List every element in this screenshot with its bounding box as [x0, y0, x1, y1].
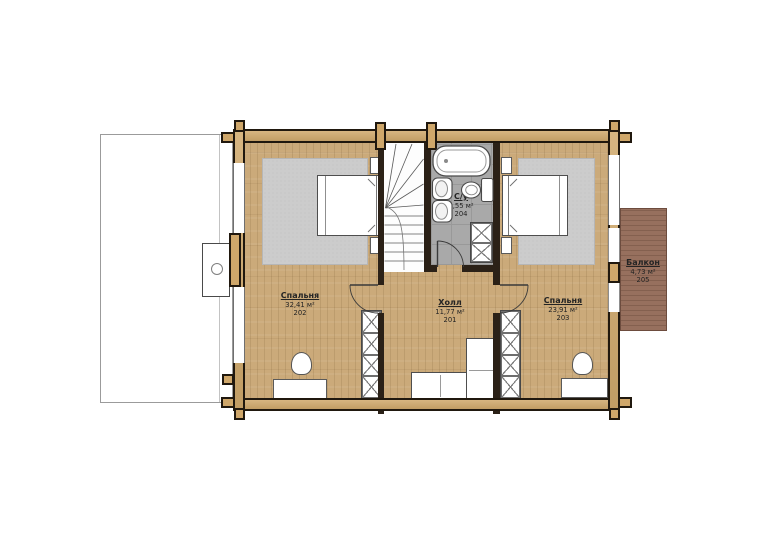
wardrobe-right [500, 310, 521, 399]
room-area: 6,55 м² [429, 202, 493, 210]
window [608, 155, 620, 225]
floorplan-canvas: Спальня 32,41 м² 202 Холл 11,77 м² 201 С… [0, 0, 768, 543]
room-name: Балкон [617, 258, 669, 268]
log-end [609, 408, 620, 420]
room-label-bedroom-right: Спальня 23,91 м² 203 [523, 296, 603, 323]
sofa-seat [411, 372, 468, 399]
chimney-flue-circle [211, 263, 223, 275]
exterior-wall-bottom [233, 398, 620, 411]
room-number: 203 [523, 314, 603, 322]
log-end [618, 397, 632, 408]
log-end [221, 397, 235, 408]
room-name: С/у [429, 192, 493, 202]
room-name: Холл [410, 298, 490, 308]
room-area: 4,73 м² [617, 268, 669, 276]
window [233, 163, 245, 233]
room-label-balcony: Балкон 4,73 м² 205 [617, 258, 669, 285]
log-end [234, 408, 245, 420]
interior-wall-bath-right-upper [493, 143, 500, 285]
room-area: 32,41 м² [255, 301, 345, 309]
cabinet-cell [471, 243, 492, 263]
nightstand [501, 237, 512, 254]
room-label-hall: Холл 11,77 м² 201 [410, 298, 490, 325]
interior-wall-bath-bottom-right [462, 265, 500, 272]
bed-right [502, 175, 568, 236]
chimney-flue-wall [229, 233, 241, 287]
sofa-cushion-line [440, 375, 441, 397]
room-number: 202 [255, 309, 345, 317]
bed-headboard [503, 176, 509, 235]
balcony-door-opening [608, 283, 620, 312]
wardrobe-cell [501, 376, 520, 398]
wardrobe-cell [501, 311, 520, 333]
room-name: Спальня [255, 291, 345, 301]
cabinet-cell [471, 223, 492, 243]
log-end [609, 120, 620, 132]
bed-blanket-line [559, 176, 560, 235]
room-name: Спальня [523, 296, 603, 306]
log-end [221, 132, 235, 143]
room-number: 205 [617, 276, 669, 284]
interior-wall-stair-left-upper [378, 143, 384, 285]
log-junction [426, 122, 437, 150]
log-end [618, 132, 632, 143]
room-label-bathroom: С/у 6,55 м² 204 [429, 192, 493, 219]
room-area: 11,77 м² [410, 308, 490, 316]
dresser [561, 378, 608, 398]
log-end [222, 374, 234, 385]
chimney [202, 243, 230, 297]
room-number: 204 [429, 210, 493, 218]
window [233, 287, 245, 363]
staircase [384, 143, 424, 272]
wardrobe-cell [501, 355, 520, 377]
room-label-bedroom-left: Спальня 32,41 м² 202 [255, 291, 345, 318]
armchair [572, 352, 593, 375]
armchair [291, 352, 312, 375]
nightstand [501, 157, 512, 174]
bed-blanket-line [325, 176, 326, 235]
log-junction [375, 122, 386, 150]
wardrobe-cell [501, 333, 520, 355]
bathroom-cabinet [470, 222, 493, 263]
interior-wall-bath-bottom-left [424, 265, 437, 272]
sofa-cushion-line [469, 370, 494, 371]
log-end [234, 120, 245, 132]
bed-left [317, 175, 383, 236]
room-area: 23,91 м² [523, 306, 603, 314]
balcony-door-opening [608, 228, 620, 262]
dresser [273, 379, 327, 399]
room-number: 201 [410, 316, 490, 324]
